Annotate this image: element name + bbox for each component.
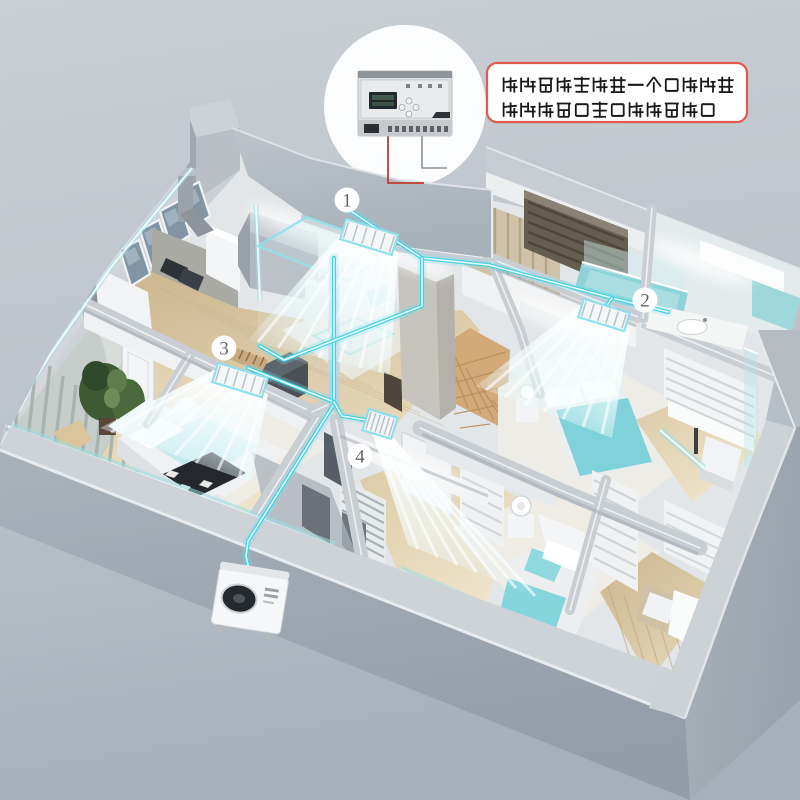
svg-text:2: 2 (640, 291, 650, 312)
svg-text:1: 1 (342, 191, 352, 212)
svg-text:4: 4 (355, 447, 365, 468)
svg-text:3: 3 (219, 339, 229, 360)
